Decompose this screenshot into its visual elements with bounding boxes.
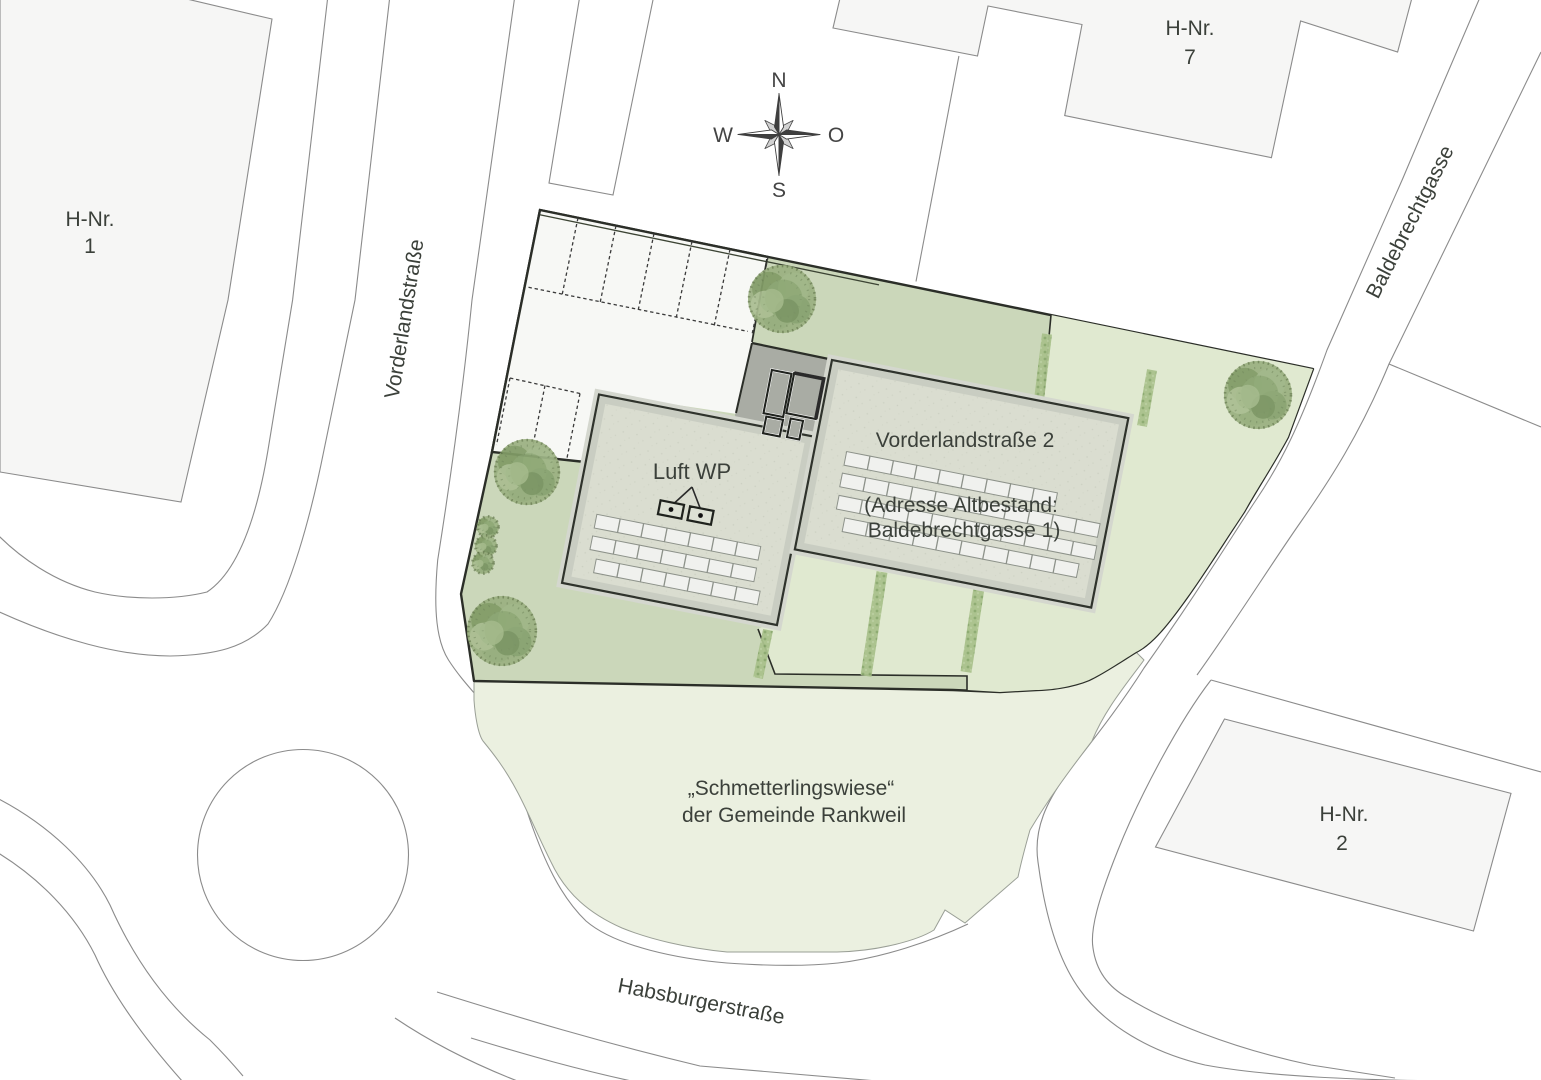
svg-text:Luft WP: Luft WP — [653, 459, 731, 484]
svg-text:Baldebrechtgasse 1): Baldebrechtgasse 1) — [868, 519, 1061, 542]
svg-text:2: 2 — [1336, 832, 1348, 855]
svg-text:S: S — [772, 179, 786, 202]
svg-text:N: N — [771, 69, 786, 92]
svg-text:W: W — [713, 124, 733, 147]
svg-text:„Schmetterlingswiese“: „Schmetterlingswiese“ — [688, 777, 895, 800]
svg-text:H-Nr.: H-Nr. — [66, 208, 115, 231]
svg-text:O: O — [828, 124, 844, 147]
svg-text:H-Nr.: H-Nr. — [1166, 17, 1215, 40]
svg-text:1: 1 — [84, 235, 96, 258]
svg-text:H-Nr.: H-Nr. — [1320, 803, 1369, 826]
svg-text:(Adresse Altbestand:: (Adresse Altbestand: — [864, 494, 1058, 517]
svg-text:der Gemeinde Rankweil: der Gemeinde Rankweil — [682, 804, 906, 827]
svg-text:7: 7 — [1184, 46, 1196, 69]
svg-text:Vorderlandstraße 2: Vorderlandstraße 2 — [876, 429, 1055, 452]
